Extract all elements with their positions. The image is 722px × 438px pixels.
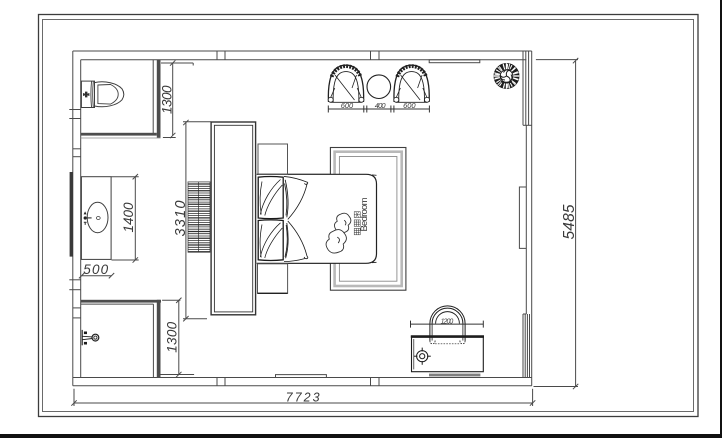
svg-text:1200: 1200 xyxy=(441,318,454,325)
svg-text:600: 600 xyxy=(403,101,416,110)
svg-text:Bedroom: Bedroom xyxy=(359,197,370,231)
svg-text:1300: 1300 xyxy=(165,321,180,352)
svg-text:500: 500 xyxy=(83,262,108,277)
svg-text:1300: 1300 xyxy=(159,85,174,114)
svg-text:1400: 1400 xyxy=(121,202,136,232)
svg-text:5485: 5485 xyxy=(561,204,578,239)
svg-text:600: 600 xyxy=(341,101,354,110)
svg-text:400: 400 xyxy=(375,101,387,110)
svg-text:3310: 3310 xyxy=(173,201,189,237)
